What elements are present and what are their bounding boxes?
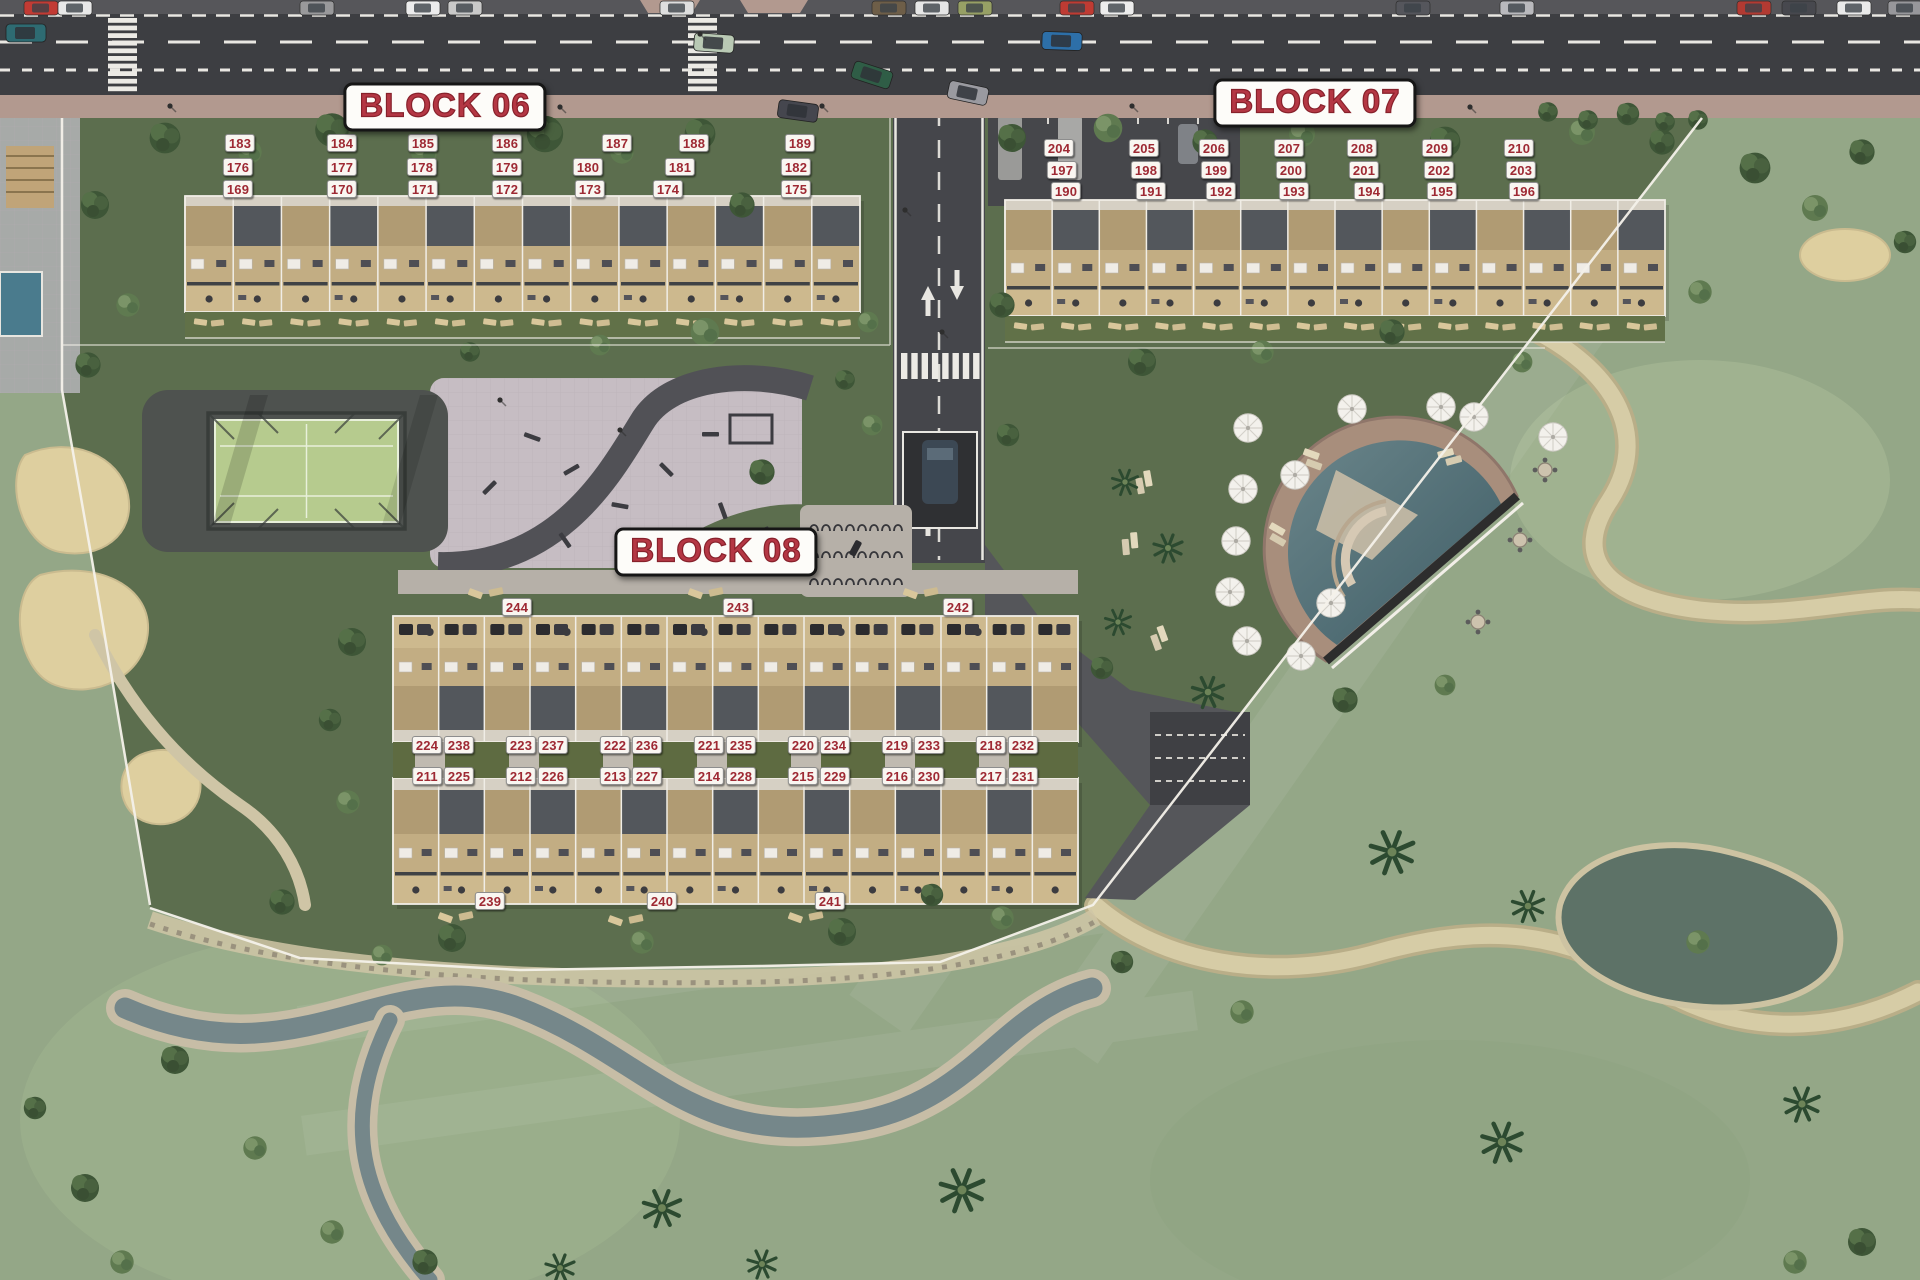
masterplan-aerial-view: 1831841851861871881891761771781791801811… xyxy=(0,0,1920,1280)
block08-courtyard xyxy=(393,742,1078,778)
site-plan-rendering xyxy=(0,0,1920,1280)
plaza-pool xyxy=(0,272,42,336)
entrance-road xyxy=(893,95,985,563)
padel-court xyxy=(142,390,448,552)
community-plaza xyxy=(0,108,80,393)
